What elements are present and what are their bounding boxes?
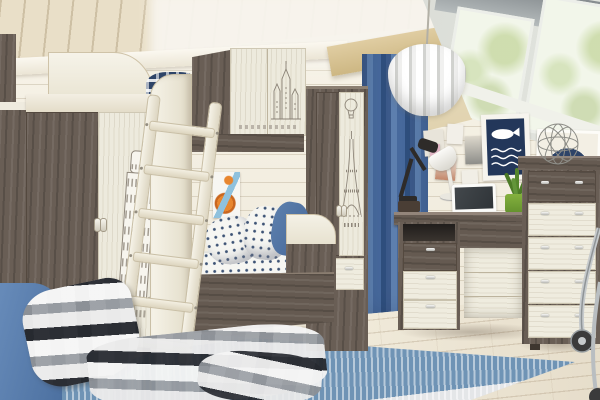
ladder-rung bbox=[149, 120, 216, 138]
wire-sphere bbox=[528, 122, 588, 166]
rocket-print bbox=[213, 172, 240, 218]
desk-drawer-white bbox=[403, 300, 457, 329]
side-panel-top bbox=[0, 102, 27, 110]
ladder-rung bbox=[143, 164, 210, 182]
desk-open-shelf bbox=[403, 224, 455, 241]
desk-apron bbox=[460, 222, 530, 248]
footboard-top bbox=[286, 214, 336, 248]
desk-drawer-white bbox=[403, 271, 457, 300]
dresser-foot bbox=[530, 344, 540, 350]
pinned-photo bbox=[446, 124, 463, 145]
ladder-rung bbox=[132, 251, 199, 269]
tall-wardrobe-door-white bbox=[339, 92, 364, 256]
cabinet-squiggle bbox=[239, 125, 297, 129]
wooden-box bbox=[398, 201, 420, 212]
castle-print bbox=[269, 53, 303, 125]
monitor bbox=[451, 183, 496, 215]
desk-drawer-dark bbox=[403, 243, 457, 271]
cabinet-doors bbox=[230, 48, 306, 136]
bed-post-top bbox=[0, 34, 16, 106]
desk-inner-drawers bbox=[464, 248, 522, 318]
wardrobe-handle bbox=[100, 218, 107, 232]
ladder-rung bbox=[138, 208, 205, 226]
eiffel-balloon-print bbox=[340, 93, 363, 253]
wardrobe-handle bbox=[341, 205, 347, 217]
monitor-screen bbox=[455, 186, 494, 209]
ladder-rung bbox=[127, 295, 194, 313]
dresser-drawer-dark bbox=[528, 171, 596, 202]
office-chair-fragment bbox=[540, 220, 600, 400]
room-photo bbox=[0, 0, 600, 400]
